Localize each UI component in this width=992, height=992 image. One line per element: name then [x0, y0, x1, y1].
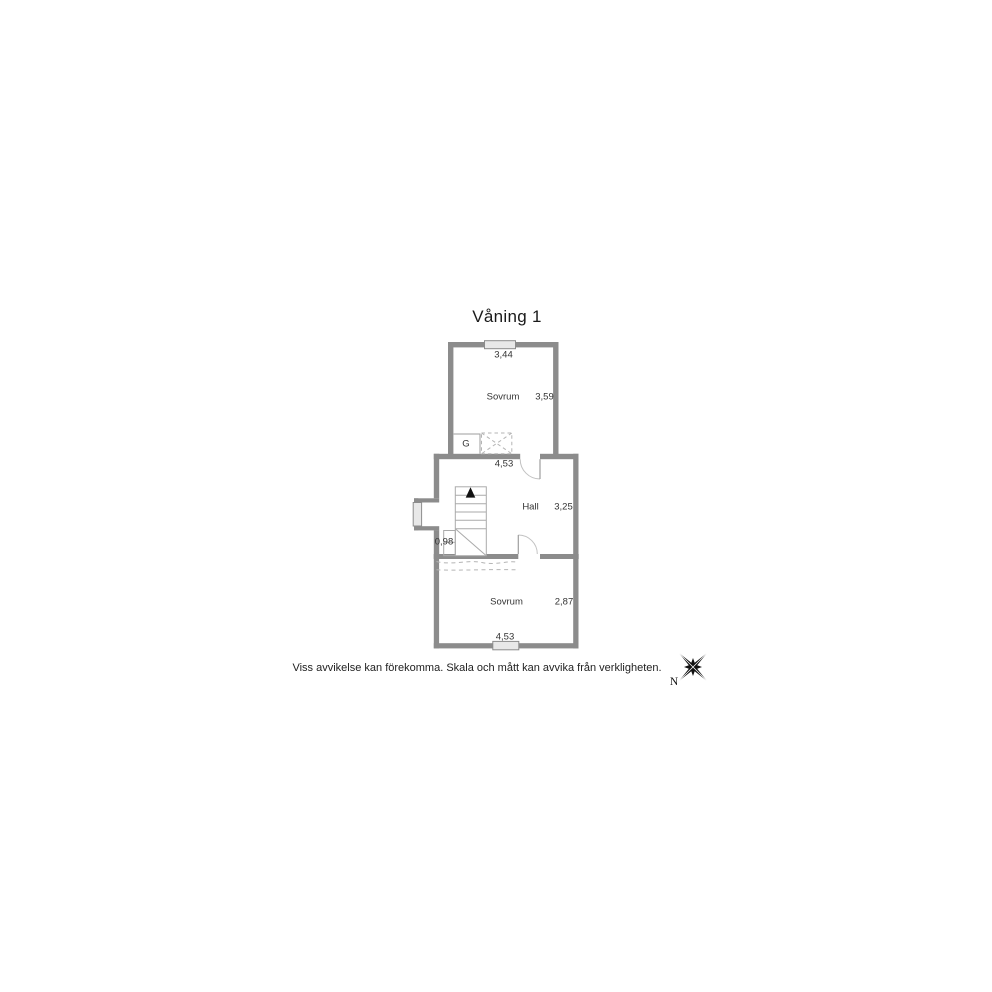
page-title: Våning 1 [472, 307, 542, 327]
window-icon [485, 341, 516, 349]
disclaimer-text: Viss avvikelse kan förekomma. Skala och … [292, 662, 661, 674]
wall [414, 526, 439, 530]
room-dimension-width: 3,44 [494, 350, 513, 360]
wall [448, 342, 453, 455]
wall [573, 454, 578, 649]
room-name: Hall [522, 502, 538, 512]
wall [434, 554, 439, 648]
floor-plan-page: Våning 1 3,44 Sovrum 3,59 G 4,53 Hall 3,… [0, 0, 992, 992]
room-dimension-height: 3,25 [554, 502, 573, 512]
room-dimension-width: 4,53 [496, 632, 515, 642]
wall [434, 454, 439, 499]
floor-plan-drawing [0, 0, 992, 992]
wall [540, 554, 579, 559]
compass-rose-icon [679, 653, 707, 681]
door-arc [518, 535, 537, 554]
window-icon [493, 641, 519, 649]
stair-width-dimension: 0,98 [435, 537, 454, 547]
room-dimension-width: 4,53 [495, 459, 514, 469]
wall [540, 454, 579, 459]
compass-north-label: N [670, 676, 678, 688]
door-arc [520, 459, 540, 479]
room-name: Sovrum [490, 597, 523, 607]
room-name: Sovrum [487, 392, 520, 402]
ceiling-height-dashed-lines [437, 562, 517, 571]
room-dimension-height: 3,59 [535, 392, 554, 402]
closet-label: G [462, 439, 469, 449]
room-dimension-height: 2,87 [555, 597, 574, 607]
wall [553, 342, 558, 455]
window-icon [413, 503, 421, 527]
wardrobe-dashed-box [482, 433, 512, 454]
